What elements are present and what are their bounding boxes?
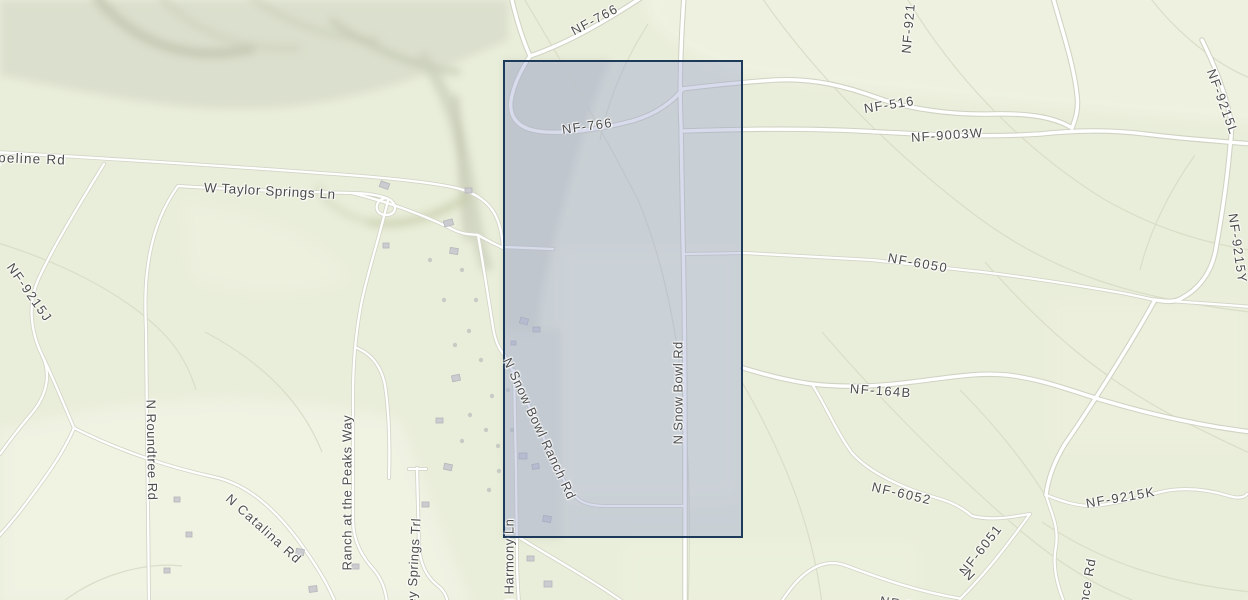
selection-rectangle[interactable] bbox=[503, 60, 743, 538]
map-canvas[interactable]: ipeline RdW Taylor Springs LnNF-766NF-76… bbox=[0, 0, 1248, 600]
